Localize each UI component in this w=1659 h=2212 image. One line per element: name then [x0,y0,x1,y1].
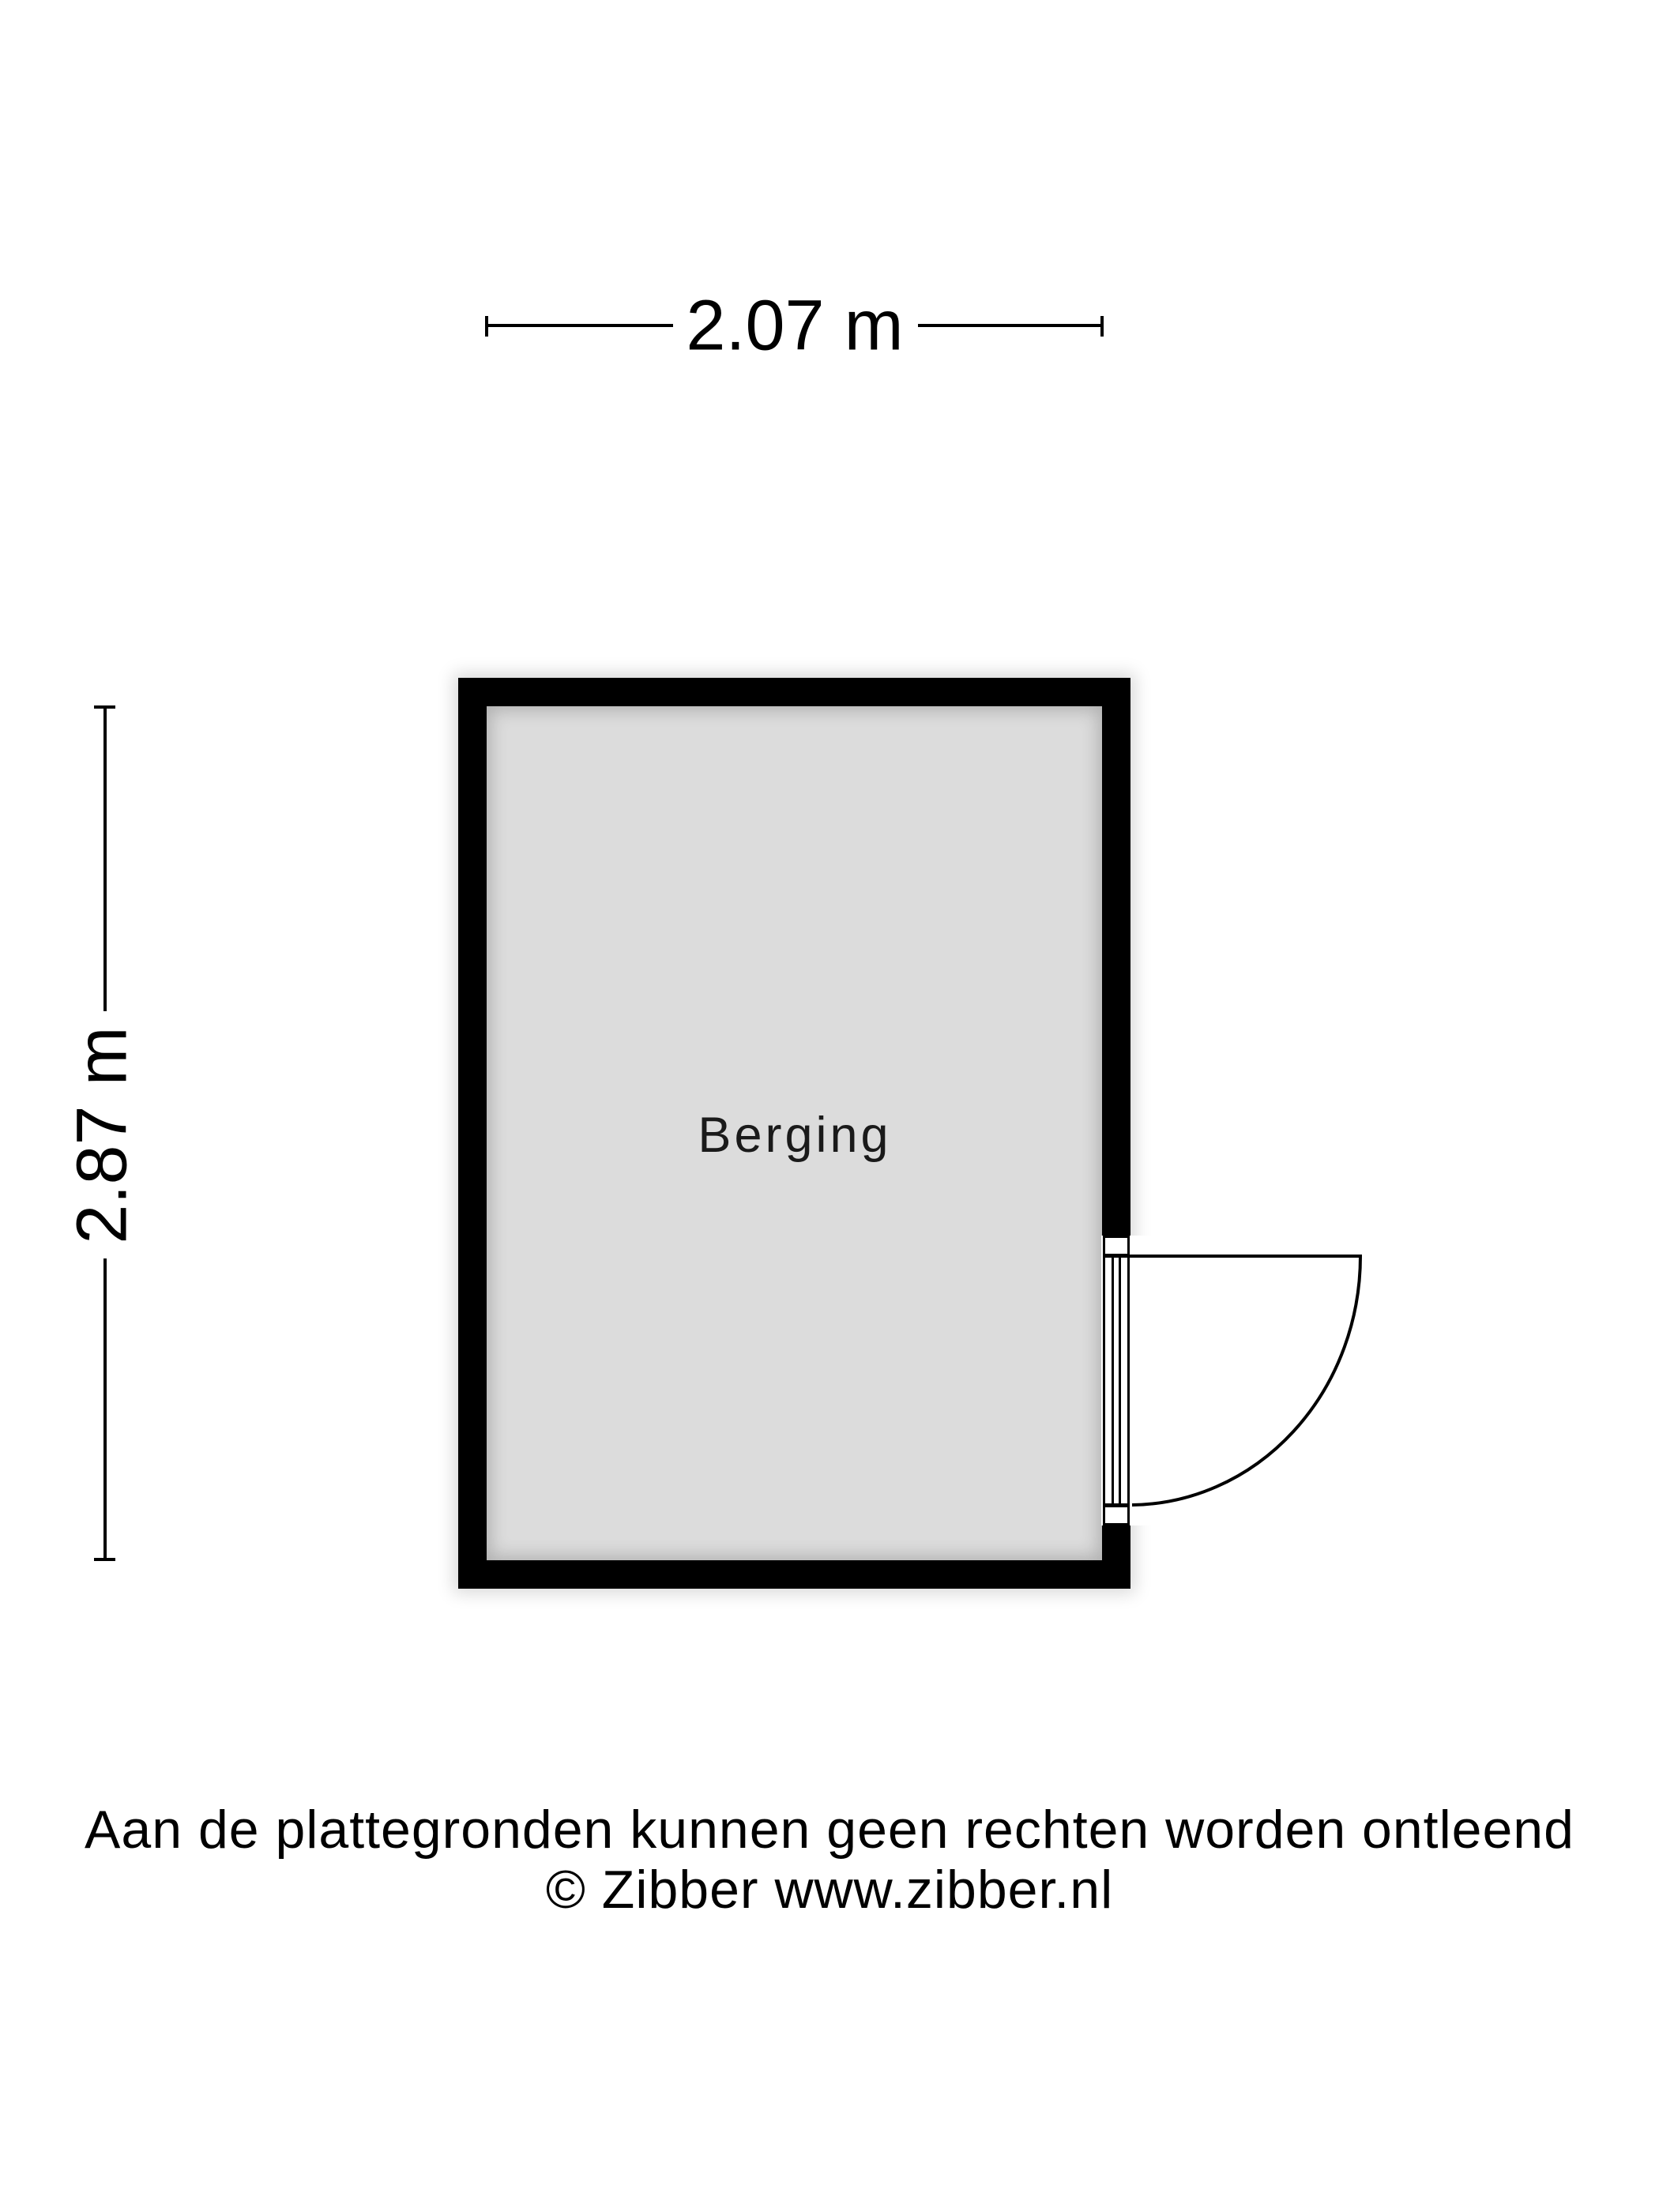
floorplan-canvas: 2.07 m 2.87 m Berging Aan de plattegrond… [0,0,1659,2212]
height-dimension-line-top [103,707,107,1011]
width-dimension-label: 2.07 m [686,286,903,367]
door-leaf-line [1119,1258,1121,1503]
footer-disclaimer: Aan de plattegronden kunnen geen rechten… [85,1803,1574,1856]
height-dimension-tick-bottom [94,1558,115,1561]
height-dimension-label: 2.87 m [62,1026,144,1243]
width-dimension-line-right [918,324,1102,327]
room-label: Berging [698,1107,891,1164]
width-dimension-line-left [487,324,673,327]
footer-copyright: © Zibber www.zibber.nl [546,1863,1113,1917]
width-dimension-tick-right [1100,316,1104,337]
height-dimension-line-bottom [103,1258,107,1560]
door-swing-arc [1122,1247,1382,1515]
door-leaf-line [1112,1258,1114,1503]
